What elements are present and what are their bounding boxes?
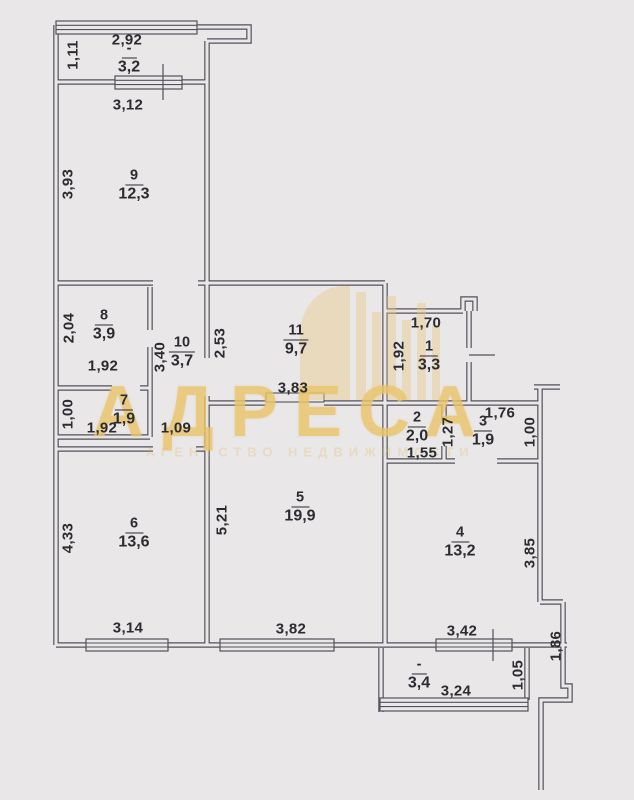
dim-right-side-depth: 1,86 xyxy=(548,631,565,661)
window-hatches xyxy=(56,21,528,711)
dim-room-9-width: 3,12 xyxy=(113,97,143,114)
room-10-number: 10 xyxy=(169,335,195,352)
room-8-number: 8 xyxy=(95,308,113,325)
dim-balcony-top-depth: 1,11 xyxy=(65,40,82,70)
room-5-label: 5 19,9 xyxy=(284,490,315,525)
dim-room-8-depth: 2,04 xyxy=(61,313,78,343)
room-balcony-bottom-area: 3,4 xyxy=(408,675,430,693)
room-7-number: 7 xyxy=(115,393,133,410)
room-1-area: 3,3 xyxy=(418,357,440,375)
dim-balcony-bottom-width: 3,24 xyxy=(441,683,471,700)
room-balcony-bottom-label: - 3,4 xyxy=(408,657,430,692)
dim-balcony-top-width: 2,92 xyxy=(112,32,142,49)
room-5-area: 19,9 xyxy=(284,508,315,526)
room-4-label: 4 13,2 xyxy=(444,525,475,560)
room-2-label: 2 2,0 xyxy=(406,410,428,445)
room-8-area: 3,9 xyxy=(93,326,115,344)
dim-room-6-depth: 4,33 xyxy=(60,523,77,553)
dim-room-11-depth: 2,53 xyxy=(212,328,229,358)
room-11-number: 11 xyxy=(283,323,308,340)
dim-room-4-width: 3,42 xyxy=(447,623,477,640)
room-6-number: 6 xyxy=(125,516,143,533)
dim-room-7-width: 1,92 xyxy=(87,420,117,437)
dim-room-2-width: 1,55 xyxy=(407,445,437,462)
dim-room-3-depth: 1,00 xyxy=(522,417,539,447)
room-9-number: 9 xyxy=(125,168,143,185)
room-10-label: 10 3,7 xyxy=(169,335,195,370)
dim-room-3-width: 1,76 xyxy=(485,405,515,422)
room-1-label: 1 3,3 xyxy=(418,339,440,374)
room-8-label: 8 3,9 xyxy=(93,308,115,343)
dim-room-4-depth: 3,85 xyxy=(522,538,539,568)
room-6-area: 13,6 xyxy=(118,534,149,552)
room-4-number: 4 xyxy=(451,525,469,542)
room-2-number: 2 xyxy=(408,410,426,427)
room-6-label: 6 13,6 xyxy=(118,516,149,551)
room-1-number: 1 xyxy=(420,339,438,356)
room-2-area: 2,0 xyxy=(406,428,428,446)
dim-room-5-depth: 5,21 xyxy=(214,505,231,535)
dim-balcony-bottom-depth: 1,05 xyxy=(510,660,527,690)
dim-room-10-pass: 1,09 xyxy=(161,420,191,437)
room-5-number: 5 xyxy=(291,490,309,507)
dim-room-1-depth: 1,92 xyxy=(391,341,408,371)
dim-room-7-depth: 1,00 xyxy=(60,399,77,429)
room-11-label: 11 9,7 xyxy=(283,323,308,358)
room-balcony-bottom-number: - xyxy=(412,657,427,674)
room-11-area: 9,7 xyxy=(285,341,307,359)
room-9-area: 12,3 xyxy=(118,186,149,204)
dim-room-8-width: 1,92 xyxy=(88,358,118,375)
room-4-area: 13,2 xyxy=(444,543,475,561)
dim-room-9-depth: 3,93 xyxy=(60,169,77,199)
dim-room-1-width: 1,70 xyxy=(411,315,441,332)
room-3-area: 1,9 xyxy=(472,432,494,450)
room-9-label: 9 12,3 xyxy=(118,168,149,203)
room-10-area: 3,7 xyxy=(171,353,193,371)
dim-room-5-width: 3,82 xyxy=(276,621,306,638)
dim-room-2-depth: 1,27 xyxy=(440,417,457,447)
dim-room-11-width: 3,83 xyxy=(278,380,308,397)
room-balcony-top-area: 3,2 xyxy=(118,59,140,77)
floorplan-page: АДРЕСА АГЕНТСТВО НЕДВИЖИМОСТИ - 3,2 9 12… xyxy=(0,0,634,800)
dim-room-10-depth: 3,40 xyxy=(152,342,169,372)
dim-room-6-width: 3,14 xyxy=(113,620,143,637)
